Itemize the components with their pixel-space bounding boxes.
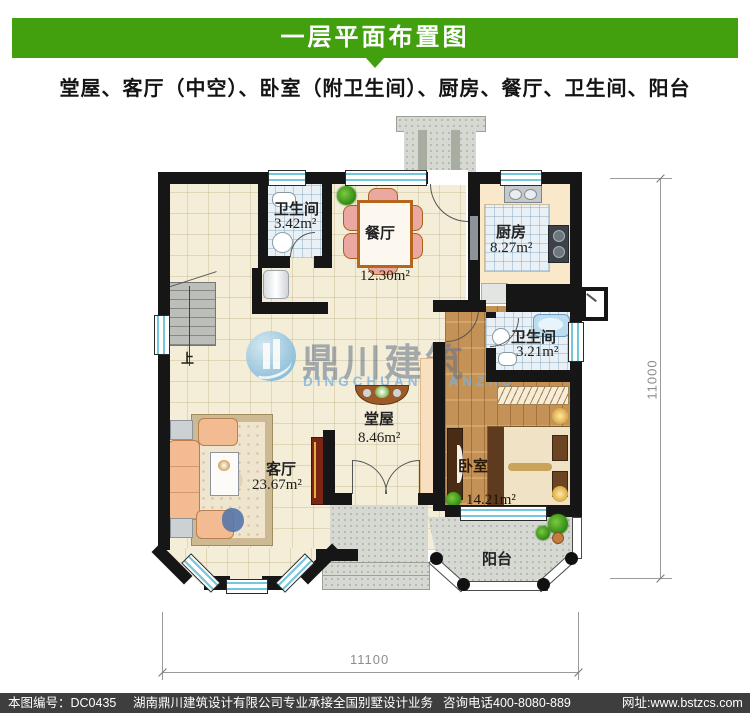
- dim-bottom-line: [162, 672, 578, 673]
- balcony-plant-icon: [548, 514, 568, 534]
- bath2-toilet-icon: [498, 352, 517, 366]
- bedroom-window: [460, 506, 547, 521]
- bath1-wall-bottom-a: [258, 256, 290, 268]
- bedroom-label: 卧室: [458, 455, 488, 476]
- kitchen-label: 厨房: [496, 221, 526, 242]
- balcony-rail-bottom: [462, 581, 548, 591]
- armchair-top: [198, 418, 238, 446]
- bath2-window: [568, 322, 584, 362]
- stairs-up-label: 上: [181, 348, 194, 367]
- coffee-table: [210, 452, 239, 496]
- footer-bar: 本图编号：DC0435 湖南鼎川建筑设计有限公司专业承接全国别墅设计业务 咨询电…: [0, 693, 750, 713]
- kitchen-window: [500, 170, 542, 186]
- balcony-column-4: [565, 552, 578, 565]
- stair-window: [154, 315, 170, 355]
- back-door-opening: [428, 170, 468, 185]
- bath1-area: 3.42m²: [274, 216, 316, 233]
- side-table-top: [170, 420, 193, 440]
- kitchen-sink-icon: [504, 185, 542, 203]
- living-area: 23.67m²: [252, 477, 302, 494]
- flue-nook: [582, 287, 608, 321]
- dining-area: 12.30m²: [360, 268, 410, 285]
- plant-icon: [337, 186, 356, 205]
- dining-label: 餐厅: [365, 222, 395, 243]
- back-porch-pillar-left: [418, 130, 427, 174]
- hall-area: 8.46m²: [358, 430, 400, 447]
- dim-right-ext-top: [610, 178, 672, 179]
- footer-sheet-no: 本图编号：DC0435: [8, 693, 116, 713]
- bath2-area: 3.21m²: [516, 344, 558, 361]
- bay-window-bottom: [226, 579, 268, 594]
- footer-company: 湖南鼎川建筑设计有限公司专业承接全国别墅设计业务: [133, 693, 433, 713]
- bedroom-wall-left-b: [433, 342, 445, 511]
- balcony-plant-icon-2: [536, 526, 550, 540]
- bedside-lamp-icon-2: [552, 486, 568, 502]
- title-banner: 一层平面布置图: [12, 18, 738, 58]
- dining-window: [345, 170, 427, 186]
- kitchen-wall-bottom-b: [506, 284, 582, 312]
- bath2-wall-bottom: [486, 370, 582, 382]
- blue-throw: [222, 508, 244, 532]
- dim-right-ext-bottom: [610, 578, 672, 579]
- dim-right-label: 11000: [645, 359, 660, 399]
- living-label: 客厅: [266, 458, 296, 479]
- page-title: 一层平面布置图: [12, 18, 738, 58]
- footer-phone: 咨询电话400-8080-889: [443, 693, 571, 713]
- banner-arrow-icon: [366, 58, 384, 68]
- floor-plan-page: 一层平面布置图 堂屋、客厅（中空）、卧室（附卫生间）、厨房、餐厅、卫生间、阳台 …: [0, 0, 750, 713]
- balcony-pot: [552, 532, 564, 544]
- closet-rack: [497, 386, 569, 405]
- hall-label: 堂屋: [364, 408, 394, 429]
- hall-wall-bottom-left: [335, 493, 352, 505]
- sofa-main: [168, 440, 200, 520]
- wall-left: [158, 172, 170, 550]
- room-list-subtitle: 堂屋、客厅（中空）、卧室（附卫生间）、厨房、餐厅、卫生间、阳台: [0, 72, 750, 101]
- kitchen-wall-gray-strip: [470, 216, 478, 260]
- bath1-wall-bottom-b: [314, 256, 332, 268]
- water-heater-icon: [263, 270, 289, 299]
- stairs: [166, 282, 216, 346]
- bath2-wall-left-a: [486, 312, 496, 318]
- back-porch: [404, 130, 476, 174]
- bedside-lamp-icon: [552, 408, 568, 424]
- dim-bottom-label: 11100: [350, 652, 389, 667]
- bay-wall-east: [316, 549, 358, 561]
- side-table-bottom: [170, 518, 193, 538]
- bedroom-wall-left-a: [433, 300, 445, 309]
- kitchen-area: 8.27m²: [490, 240, 532, 257]
- balcony-column-2: [457, 578, 470, 591]
- front-step-band2: [322, 575, 430, 590]
- dim-right-line: [660, 178, 661, 578]
- stove-icon: [548, 225, 569, 263]
- balcony-column-3: [537, 578, 550, 591]
- hall-wall-bottom-right: [418, 493, 445, 505]
- balcony-column-1: [430, 552, 443, 565]
- back-porch-pillar-right: [451, 130, 460, 174]
- hall-divider-wall: [323, 430, 335, 505]
- footer-website: 网址:www.bstzcs.com: [622, 693, 743, 713]
- nook-wall-bottom: [252, 302, 328, 314]
- balcony-label: 阳台: [482, 548, 512, 569]
- bath1-window: [268, 170, 306, 186]
